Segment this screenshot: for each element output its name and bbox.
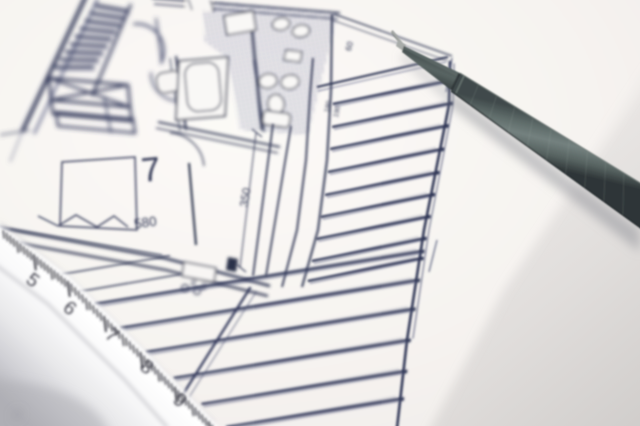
svg-text:580: 580 xyxy=(133,214,157,232)
svg-text:7: 7 xyxy=(139,150,162,190)
